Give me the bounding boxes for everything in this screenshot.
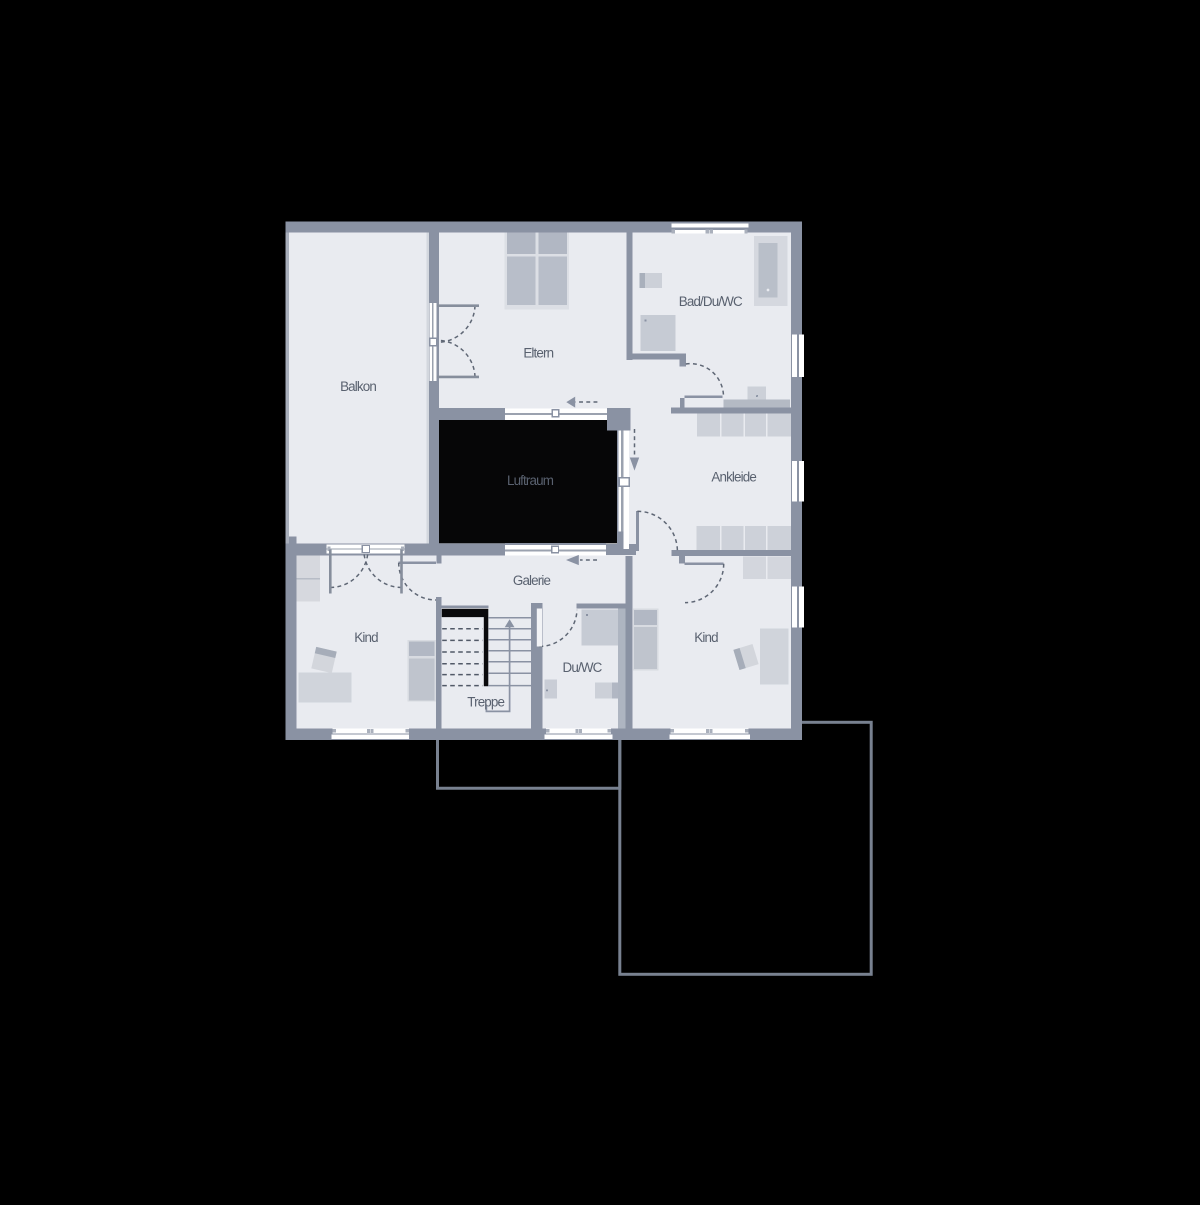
svg-text:Eltern: Eltern <box>523 346 553 361</box>
svg-text:Luftraum: Luftraum <box>507 473 554 488</box>
svg-text:Kind: Kind <box>694 630 718 645</box>
svg-text:Ankleide: Ankleide <box>711 470 756 485</box>
svg-text:Galerie: Galerie <box>513 573 551 588</box>
svg-text:Kind: Kind <box>354 630 378 645</box>
svg-text:Bad/Du/WC: Bad/Du/WC <box>679 294 743 309</box>
svg-text:Balkon: Balkon <box>340 379 376 394</box>
svg-text:Treppe: Treppe <box>467 695 504 710</box>
svg-text:Du/WC: Du/WC <box>563 660 603 675</box>
